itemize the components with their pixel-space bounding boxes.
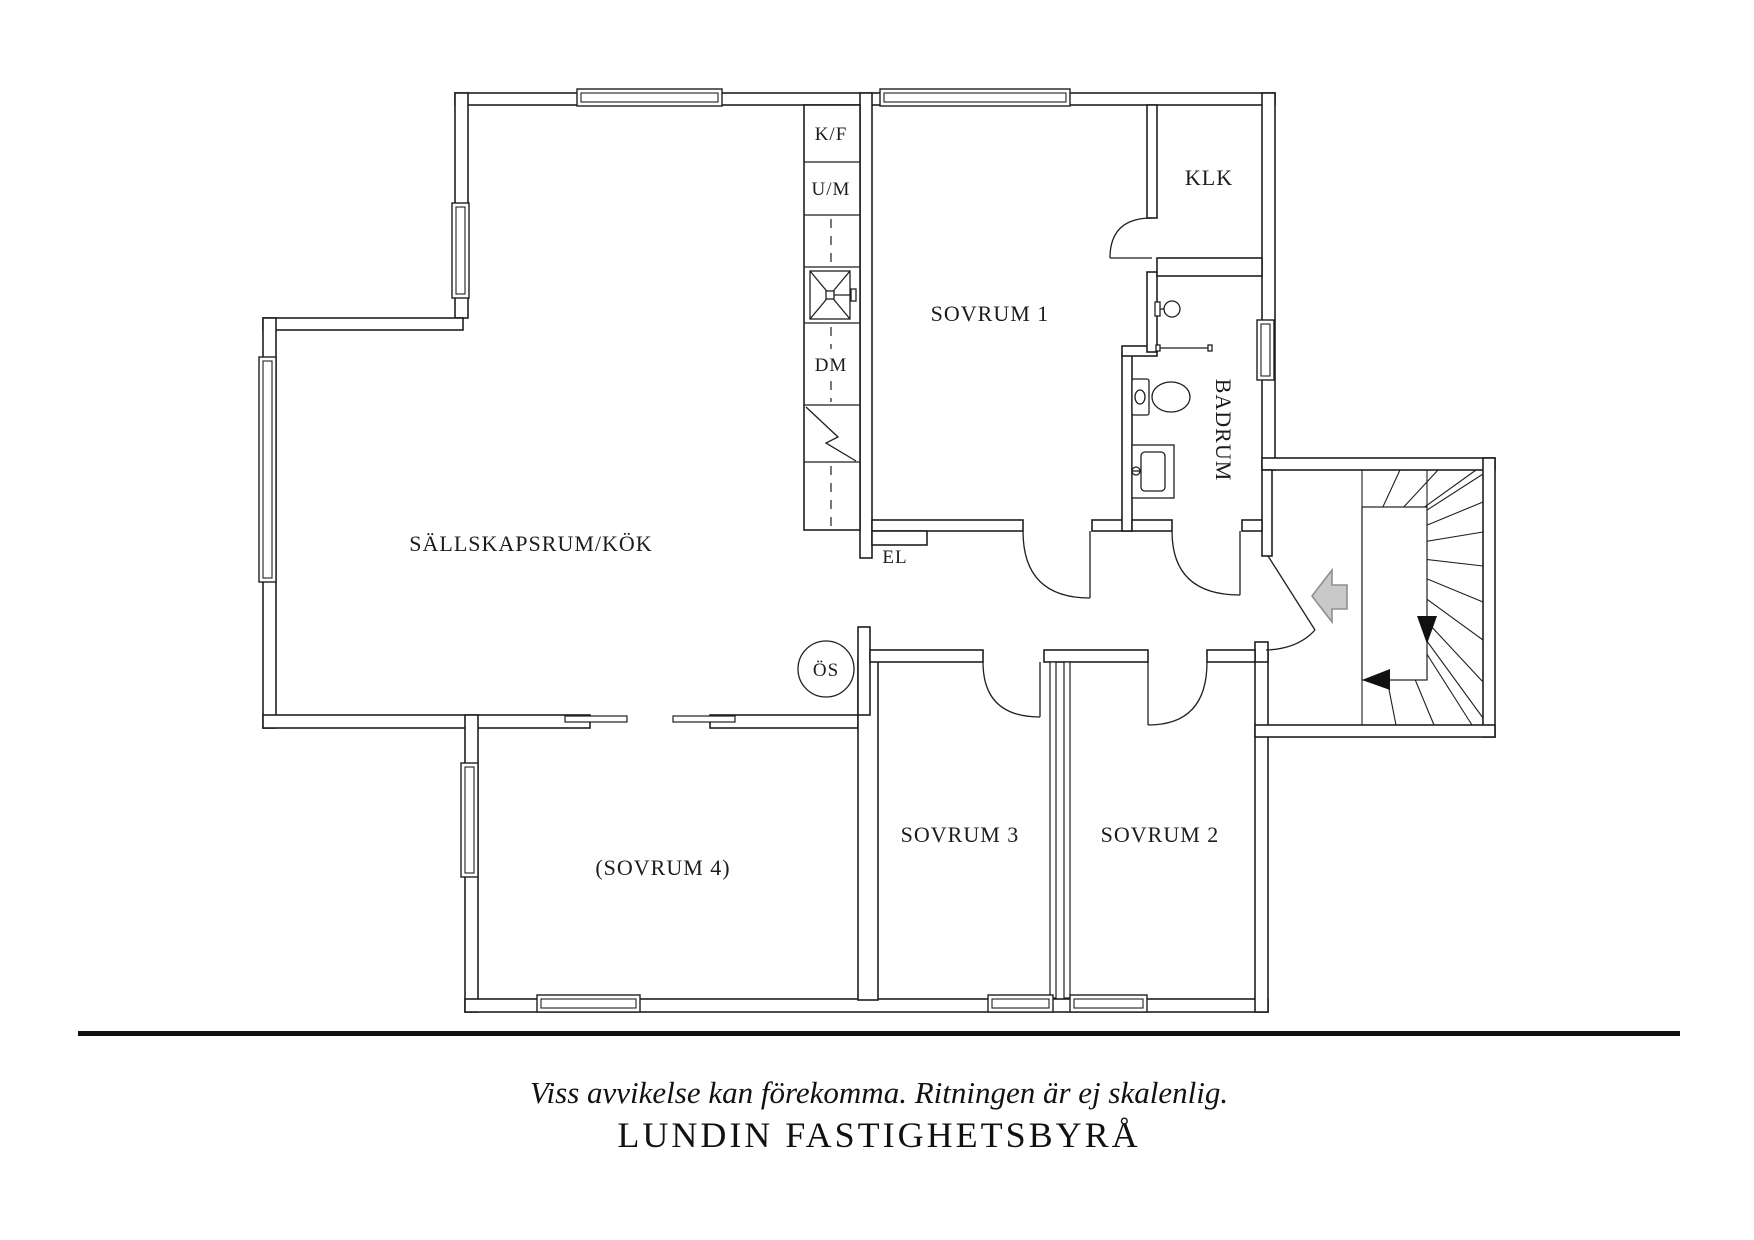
window [577, 89, 722, 106]
wall-right-upper [1262, 93, 1275, 470]
footer: Viss avvikelse kan förekomma. Ritningen … [78, 1031, 1680, 1155]
staircase-icon [1362, 470, 1483, 725]
entrance-arrow-icon [1312, 570, 1347, 622]
room-label-bedroom4: (SOVRUM 4) [595, 855, 730, 880]
window [461, 763, 478, 877]
wall-closet-left [1147, 105, 1157, 218]
wall-right-lower [1255, 650, 1268, 1012]
wall-kitchen [860, 93, 872, 558]
wall-bedroom2-top-right [1207, 650, 1255, 662]
wall-bedroom2-top-left [1044, 650, 1148, 662]
wall-partition-32-b [1064, 662, 1070, 998]
floorplan-page: SÄLLSKAPSRUM/KÖK SOVRUM 1 KLK BADRUM SOV… [0, 0, 1754, 1240]
wall-stair-right [1483, 458, 1495, 737]
brand-logo-text: LUNDIN FASTIGHETSBYRÅ [617, 1115, 1140, 1155]
kitchen-sink-icon [810, 271, 856, 319]
window [259, 357, 276, 582]
door-bathroom [1172, 531, 1240, 595]
window [1257, 320, 1274, 380]
wall-bathroom-bottom-right [1242, 520, 1262, 531]
room-label-bedroom1: SOVRUM 1 [931, 301, 1050, 326]
wall-bathroom-left-lower [1122, 352, 1132, 531]
window [537, 995, 640, 1012]
wall-lobby-left-upper [1262, 470, 1272, 556]
room-label-bathroom: BADRUM [1211, 379, 1236, 482]
wall-bathroom-bottom-left [1132, 520, 1172, 531]
kitchen-unit [804, 105, 860, 530]
window [452, 203, 469, 298]
wall-step [263, 318, 463, 330]
door-bedroom2 [1148, 662, 1207, 725]
wall-bedroom3-top [870, 650, 983, 662]
wall-stair-top [1262, 458, 1495, 470]
wall-chimney-stub [858, 627, 870, 715]
window [988, 995, 1053, 1012]
pocket-door-leaf-right [673, 716, 735, 722]
label-dishwasher: DM [815, 355, 848, 376]
wall-closet-bottom [1157, 258, 1262, 276]
disclaimer-text: Viss avvikelse kan förekomma. Ritningen … [530, 1075, 1228, 1110]
floorplan-drawing: SÄLLSKAPSRUM/KÖK SOVRUM 1 KLK BADRUM SOV… [0, 0, 1754, 1240]
shower-icon [1155, 301, 1180, 317]
door-bedroom3 [983, 662, 1040, 717]
room-label-living: SÄLLSKAPSRUM/KÖK [409, 531, 652, 556]
window [880, 89, 1070, 106]
wall-stair-bottom [1255, 725, 1495, 737]
divider-line [78, 1031, 1680, 1036]
wall-bumpout-bottom [263, 715, 590, 728]
towel-bar-icon [1156, 345, 1212, 351]
room-label-bedroom2: SOVRUM 2 [1101, 822, 1220, 847]
label-fridge-freezer: K/F [815, 124, 848, 145]
wall-partition-32-a [1050, 662, 1056, 998]
window [1070, 995, 1147, 1012]
door-entrance [1266, 556, 1315, 650]
label-oven-micro: U/M [812, 179, 851, 200]
door-closet [1110, 218, 1152, 258]
room-label-closet: KLK [1185, 165, 1233, 190]
toilet-icon [1132, 379, 1190, 415]
sink-icon [1132, 445, 1174, 498]
electrical-cabinet [872, 531, 927, 545]
stair-newel [1362, 507, 1427, 680]
wall-lobby-left-lower [1255, 642, 1268, 662]
label-electrical: EL [882, 547, 907, 568]
label-fireplace: ÖS [813, 660, 839, 681]
room-label-bedroom3: SOVRUM 3 [901, 822, 1020, 847]
wall-hall-a [872, 520, 1023, 531]
bathroom-fixtures [1132, 301, 1212, 498]
door-bedroom1 [1023, 531, 1090, 598]
pocket-door-leaf-left [565, 716, 627, 722]
